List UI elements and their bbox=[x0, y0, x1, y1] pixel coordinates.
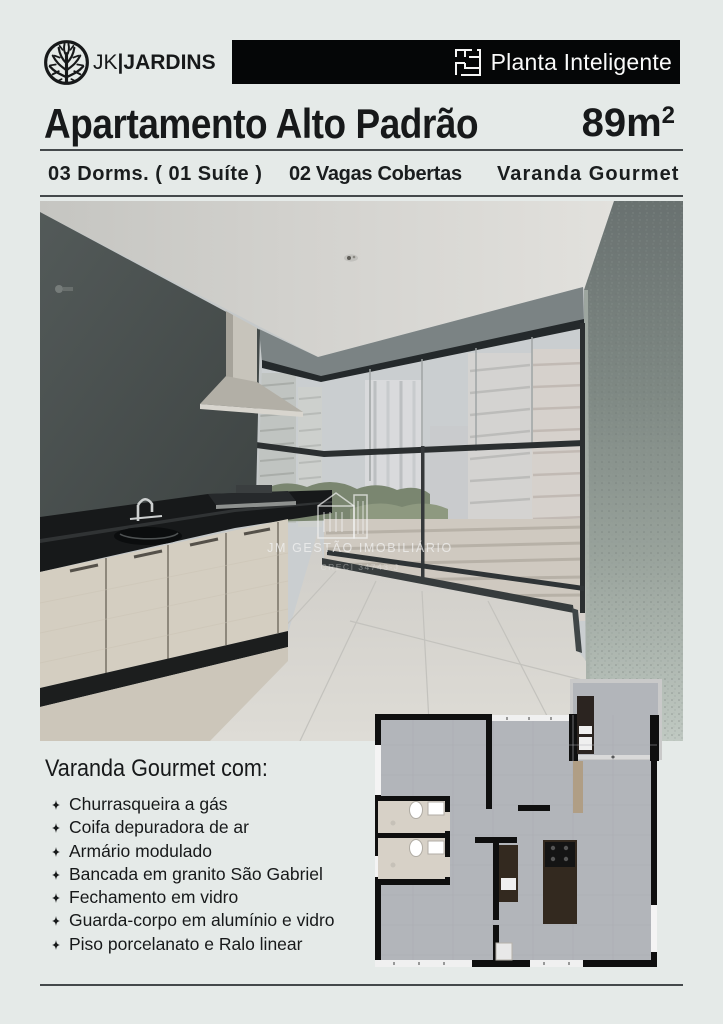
svg-text:JM GESTÃO IMOBILIÁRIO: JM GESTÃO IMOBILIÁRIO bbox=[267, 540, 453, 555]
svg-text:CRECI 34743-J: CRECI 34743-J bbox=[320, 562, 399, 572]
